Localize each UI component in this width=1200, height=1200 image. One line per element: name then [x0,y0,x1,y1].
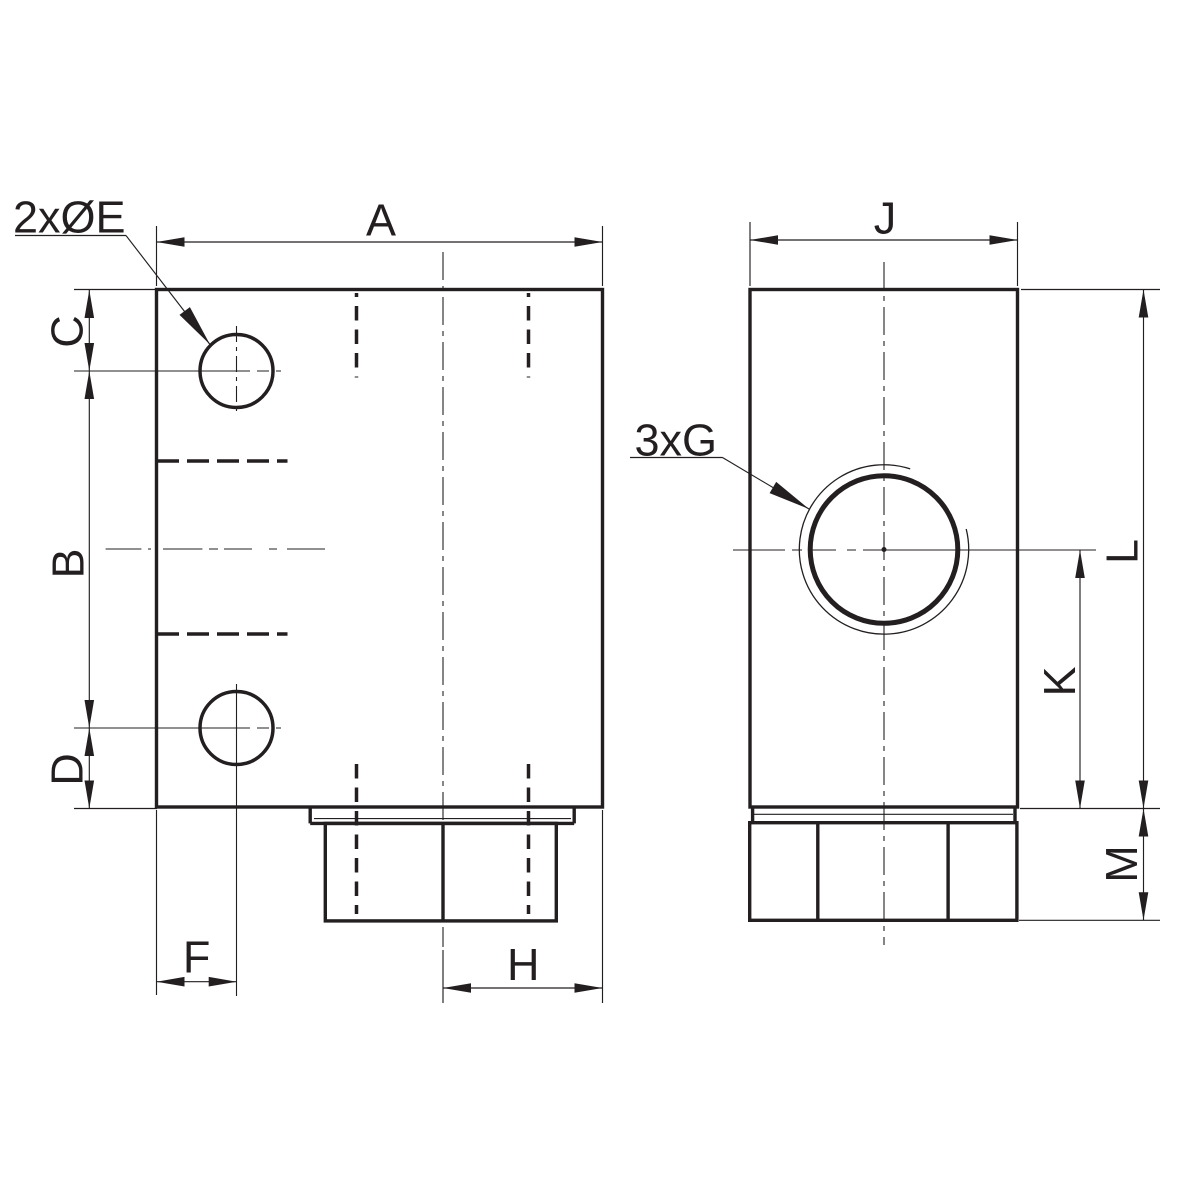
svg-text:3xG: 3xG [635,415,718,466]
svg-text:D: D [42,753,93,786]
svg-text:M: M [1096,845,1147,883]
svg-text:L: L [1096,539,1147,564]
svg-text:H: H [507,939,540,990]
svg-text:K: K [1034,666,1085,696]
svg-text:F: F [183,932,211,983]
svg-text:A: A [366,195,396,246]
svg-text:C: C [41,315,92,348]
svg-text:J: J [874,193,897,244]
svg-text:2xØE: 2xØE [13,192,126,243]
svg-text:B: B [42,548,93,578]
